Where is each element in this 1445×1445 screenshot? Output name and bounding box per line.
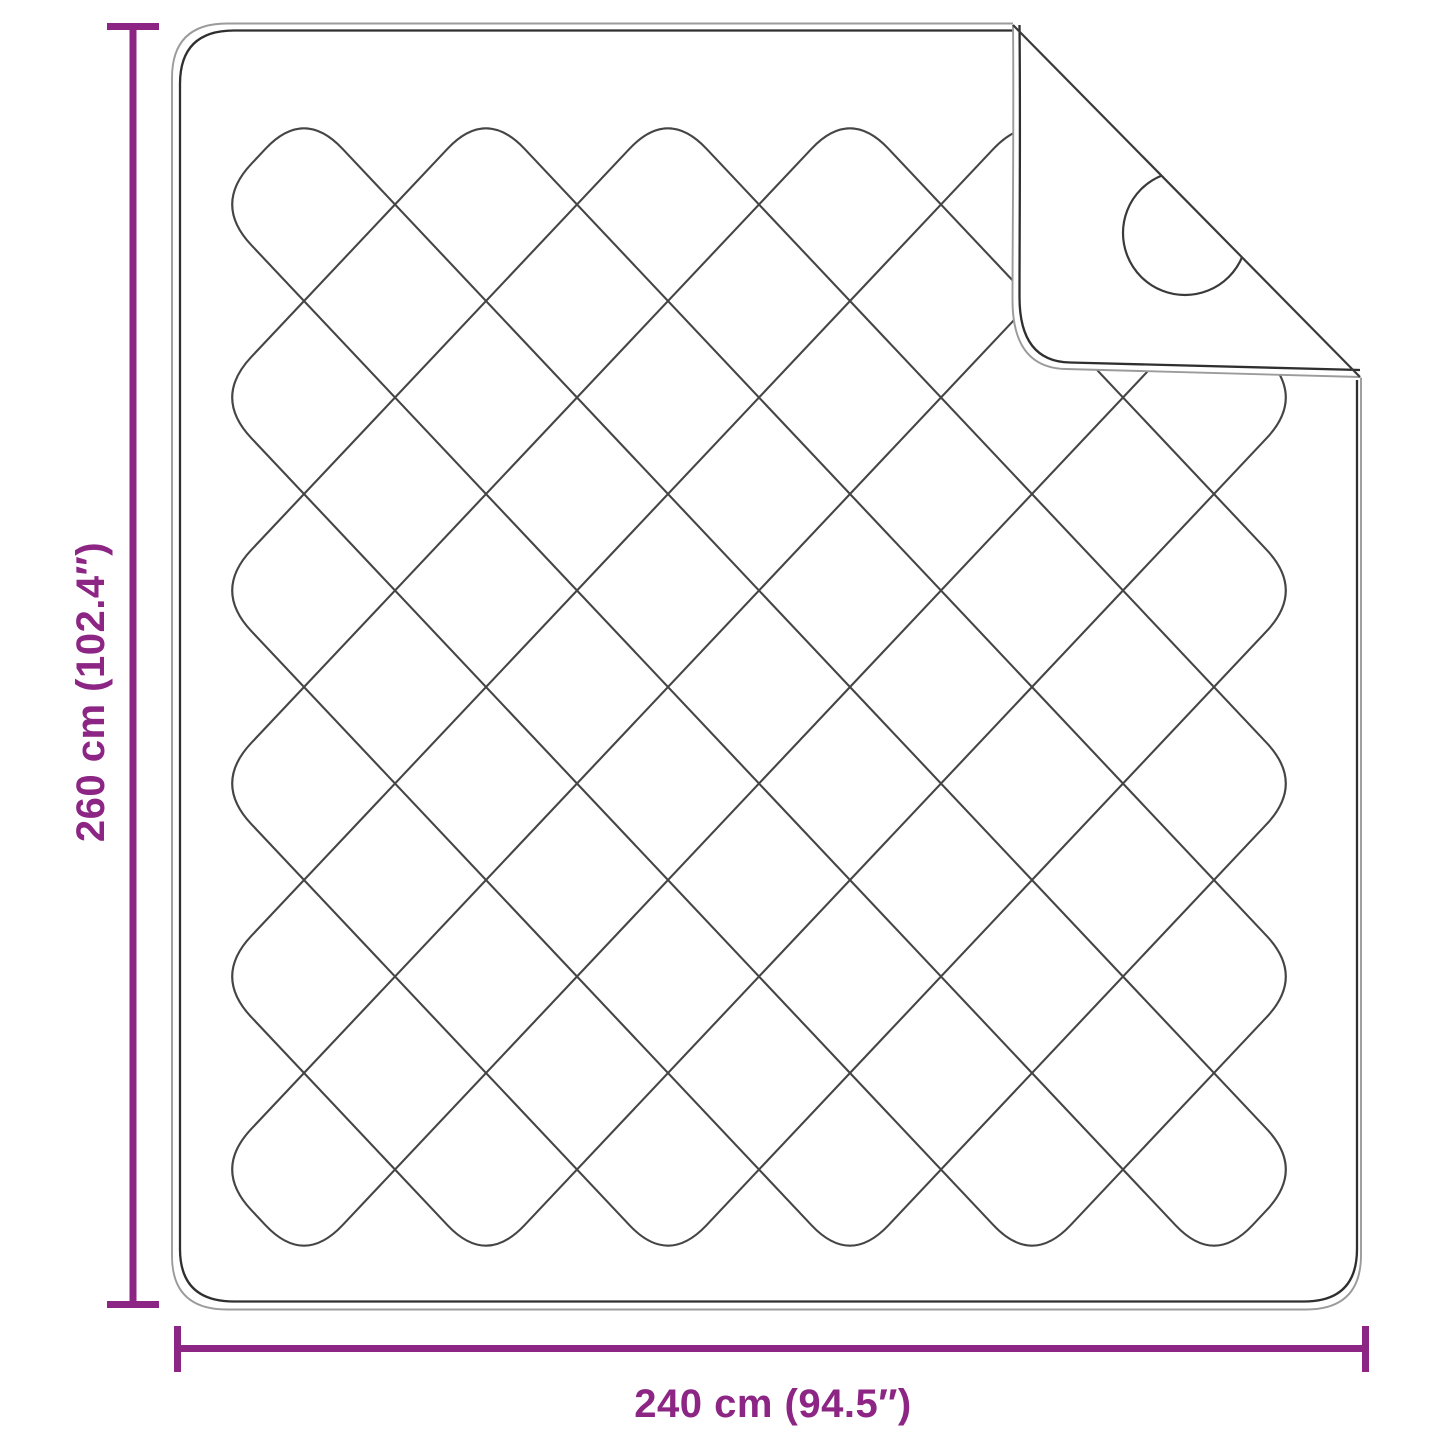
blanket-diagram-canvas: 260 cm (102.4″) 240 cm (94.5″) [0,0,1445,1445]
height-dimension: 260 cm (102.4″) [69,26,159,1305]
product-dimension-diagram: 260 cm (102.4″) 240 cm (94.5″) [0,0,1445,1445]
folded-corner-flap [1013,25,1361,377]
height-dimension-label: 260 cm (102.4″) [69,542,113,842]
width-dimension: 240 cm (94.5″) [177,1326,1366,1426]
width-dimension-label: 240 cm (94.5″) [634,1382,911,1426]
